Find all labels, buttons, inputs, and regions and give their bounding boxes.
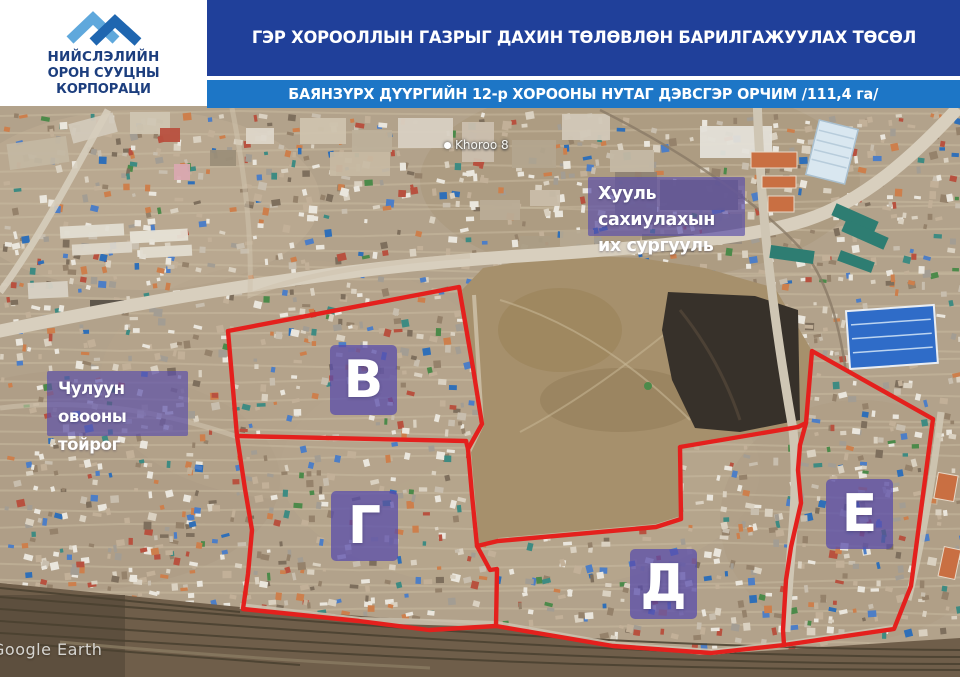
place-label-text: Khoroo 8 (455, 138, 509, 152)
region-marker-d: Д (630, 549, 697, 619)
map-label-chuluun-ovoo: Чулуун овооны тойрог (47, 371, 188, 436)
map-label-line: тойрог (58, 431, 188, 459)
organization-name-line1: НИЙСЛЭЛИЙН (0, 49, 207, 65)
project-map-poster: Хууль сахиулахын их сургууль Чулуун овоо… (0, 0, 960, 677)
place-marker-icon (444, 142, 451, 149)
roof-chevrons-logo-icon (66, 8, 142, 48)
map-label-line: их сургууль (598, 233, 745, 259)
organization-name-line2: ОРОН СУУЦНЫ КОРПОРАЦИ (3, 65, 204, 97)
main-title-banner: ГЭР ХОРООЛЛЫН ГАЗРЫГ ДАХИН ТӨЛӨВЛӨН БАРИ… (207, 0, 960, 76)
sub-title-banner: БАЯНЗҮРХ ДҮҮРГИЙН 12-р ХОРООНЫ НУТАГ ДЭВ… (207, 80, 960, 108)
map-label-line: Чулуун овооны (58, 375, 188, 431)
google-earth-watermark: Google Earth (0, 640, 102, 659)
map-label-law-university: Хууль сахиулахын их сургууль (588, 177, 745, 236)
organization-logo: НИЙСЛЭЛИЙН ОРОН СУУЦНЫ КОРПОРАЦИ (0, 0, 207, 106)
map-label-line: Хууль сахиулахын (598, 181, 745, 233)
region-marker-e: Е (826, 479, 893, 549)
main-title: ГЭР ХОРООЛЛЫН ГАЗРЫГ ДАХИН ТӨЛӨВЛӨН БАРИ… (251, 28, 915, 48)
region-marker-g: Г (331, 491, 398, 561)
region-marker-v: В (330, 345, 397, 415)
title-banners: ГЭР ХОРООЛЛЫН ГАЗРЫГ ДАХИН ТӨЛӨВЛӨН БАРИ… (207, 0, 960, 108)
sub-title: БАЯНЗҮРХ ДҮҮРГИЙН 12-р ХОРООНЫ НУТАГ ДЭВ… (289, 85, 879, 103)
header: ГЭР ХОРООЛЛЫН ГАЗРЫГ ДАХИН ТӨЛӨВЛӨН БАРИ… (0, 0, 960, 108)
place-label-khoroo8: Khoroo 8 (444, 138, 509, 152)
